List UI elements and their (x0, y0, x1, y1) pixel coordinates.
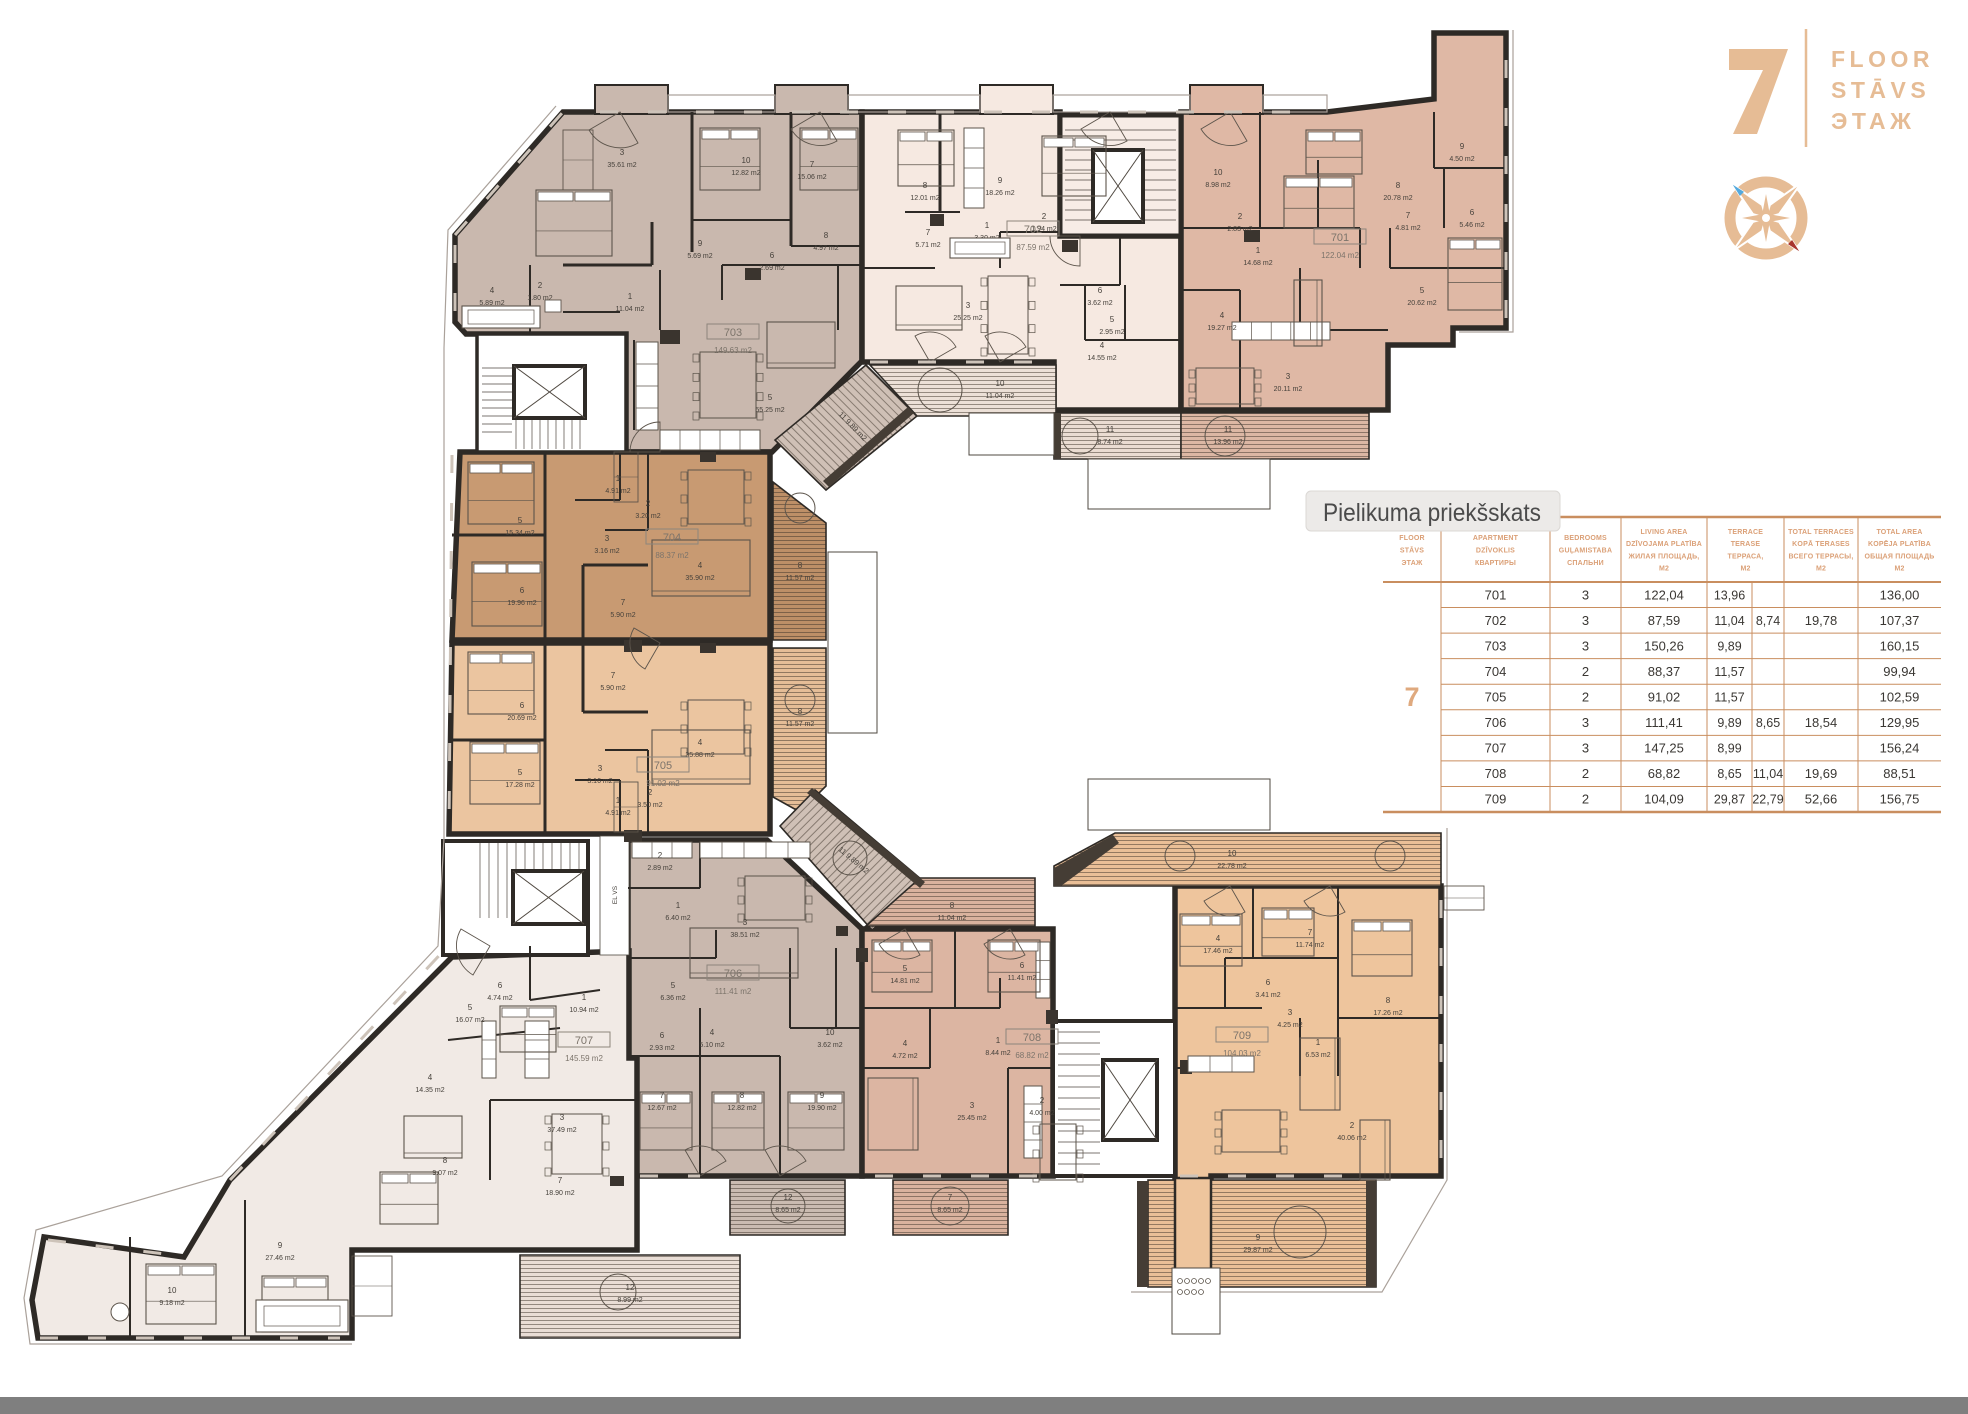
svg-text:40.06 m2: 40.06 m2 (1337, 1135, 1366, 1142)
svg-text:11.04 m2: 11.04 m2 (938, 915, 967, 922)
svg-text:136,00: 136,00 (1880, 587, 1920, 602)
svg-text:4.74 m2: 4.74 m2 (487, 995, 512, 1002)
svg-text:55.25 m2: 55.25 m2 (755, 407, 784, 414)
svg-text:5: 5 (768, 393, 773, 402)
svg-text:149.63 m2: 149.63 m2 (714, 346, 752, 355)
svg-text:701: 701 (1485, 587, 1507, 602)
svg-text:27.46 m2: 27.46 m2 (265, 1255, 294, 1262)
svg-text:5: 5 (1110, 315, 1115, 324)
svg-text:8,99: 8,99 (1717, 742, 1741, 756)
svg-text:52,66: 52,66 (1805, 792, 1838, 807)
svg-text:3: 3 (1582, 741, 1589, 756)
svg-text:7: 7 (926, 228, 931, 237)
svg-text:ТЕРРАСА,: ТЕРРАСА, (1727, 553, 1763, 560)
svg-text:88,37: 88,37 (1648, 664, 1681, 679)
svg-text:3: 3 (620, 148, 625, 157)
svg-text:3: 3 (605, 534, 610, 543)
svg-text:4: 4 (1220, 311, 1225, 320)
svg-text:88,51: 88,51 (1883, 766, 1916, 781)
svg-text:2.93 m2: 2.93 m2 (649, 1045, 674, 1052)
svg-text:2: 2 (1238, 212, 1243, 221)
svg-text:8.74 m2: 8.74 m2 (1097, 439, 1122, 446)
svg-text:5: 5 (671, 981, 676, 990)
svg-text:6: 6 (1266, 978, 1271, 987)
svg-text:2: 2 (648, 788, 653, 797)
svg-text:37.49 m2: 37.49 m2 (547, 1127, 576, 1134)
svg-text:5.46 m2: 5.46 m2 (1459, 222, 1484, 229)
svg-text:19.27 m2: 19.27 m2 (1207, 325, 1236, 332)
svg-text:1: 1 (1316, 1038, 1321, 1047)
svg-text:ЭТАЖ: ЭТАЖ (1831, 108, 1915, 134)
svg-text:147,25: 147,25 (1644, 741, 1684, 756)
svg-text:156,24: 156,24 (1880, 741, 1920, 756)
svg-text:4.50 m2: 4.50 m2 (1449, 156, 1474, 163)
svg-text:STĀVS: STĀVS (1400, 546, 1424, 554)
svg-text:145.59 m2: 145.59 m2 (565, 1054, 603, 1063)
svg-text:2: 2 (1582, 664, 1589, 679)
svg-text:25.45 m2: 25.45 m2 (957, 1115, 986, 1122)
svg-text:2.89 m2: 2.89 m2 (647, 865, 672, 872)
svg-text:10: 10 (1214, 168, 1223, 177)
svg-text:8: 8 (798, 561, 803, 570)
svg-text:2: 2 (1582, 690, 1589, 705)
svg-text:8.65 m2: 8.65 m2 (775, 1207, 800, 1214)
svg-text:1: 1 (582, 993, 587, 1002)
svg-text:FLOOR: FLOOR (1399, 535, 1425, 542)
svg-text:4.81 m2: 4.81 m2 (1395, 225, 1420, 232)
svg-text:12: 12 (784, 1193, 793, 1202)
svg-text:709: 709 (1233, 1030, 1251, 1042)
svg-text:14.35 m2: 14.35 m2 (415, 1087, 444, 1094)
svg-text:708: 708 (1023, 1032, 1041, 1044)
svg-text:19.96 m2: 19.96 m2 (507, 600, 536, 607)
svg-text:3.16 m2: 3.16 m2 (594, 548, 619, 555)
svg-text:3: 3 (1582, 613, 1589, 628)
svg-text:11.57 m2: 11.57 m2 (786, 721, 815, 728)
svg-text:4: 4 (490, 286, 495, 295)
svg-text:3.50 m2: 3.50 m2 (637, 802, 662, 809)
svg-text:160,15: 160,15 (1880, 638, 1920, 653)
svg-text:12.82 m2: 12.82 m2 (727, 1105, 756, 1112)
svg-text:11.57 m2: 11.57 m2 (786, 575, 815, 582)
svg-text:87.59 m2: 87.59 m2 (1016, 243, 1050, 252)
svg-text:8.65 m2: 8.65 m2 (937, 1207, 962, 1214)
svg-text:17.26 m2: 17.26 m2 (1373, 1010, 1402, 1017)
svg-text:22.78 m2: 22.78 m2 (1217, 863, 1246, 870)
svg-text:5: 5 (468, 1003, 473, 1012)
svg-text:707: 707 (1485, 741, 1507, 756)
svg-text:KOPĀ TERASES: KOPĀ TERASES (1792, 540, 1850, 548)
svg-text:6: 6 (1020, 961, 1025, 970)
svg-text:11.04 m2: 11.04 m2 (616, 306, 645, 313)
svg-text:8,65: 8,65 (1756, 716, 1780, 730)
svg-text:22,79: 22,79 (1752, 793, 1783, 807)
svg-text:5.90 m2: 5.90 m2 (610, 612, 635, 619)
svg-text:11.04 m2: 11.04 m2 (986, 393, 1015, 400)
svg-text:1: 1 (1256, 246, 1261, 255)
svg-text:3: 3 (743, 918, 748, 927)
svg-text:8.98 m2: 8.98 m2 (1205, 182, 1230, 189)
svg-text:7: 7 (611, 671, 616, 680)
svg-text:1: 1 (616, 474, 621, 483)
svg-text:GUĻAMISTABA: GUĻAMISTABA (1559, 547, 1612, 554)
svg-text:5.69 m2: 5.69 m2 (687, 253, 712, 260)
svg-text:KOPĒJA PLATĪBA: KOPĒJA PLATĪBA (1868, 540, 1931, 548)
svg-text:2: 2 (538, 281, 543, 290)
svg-text:3.62 m2: 3.62 m2 (1087, 300, 1112, 307)
svg-text:29,87: 29,87 (1714, 793, 1745, 807)
svg-text:5: 5 (903, 964, 908, 973)
svg-text:4: 4 (698, 738, 703, 747)
svg-text:STĀVS: STĀVS (1831, 77, 1930, 103)
svg-text:9: 9 (278, 1241, 283, 1250)
svg-text:9,89: 9,89 (1717, 716, 1741, 730)
svg-text:ЭТАЖ: ЭТАЖ (1402, 560, 1423, 567)
svg-text:TOTAL TERRACES: TOTAL TERRACES (1788, 529, 1854, 536)
svg-text:2: 2 (1350, 1121, 1355, 1130)
svg-text:1: 1 (985, 221, 990, 230)
svg-text:DZĪVOKLIS: DZĪVOKLIS (1476, 546, 1515, 554)
svg-text:12.82 m2: 12.82 m2 (731, 170, 760, 177)
svg-text:FLOOR: FLOOR (1831, 46, 1934, 72)
svg-text:5.10 m2: 5.10 m2 (699, 1042, 724, 1049)
svg-text:6.36 m2: 6.36 m2 (660, 995, 685, 1002)
svg-text:703: 703 (724, 327, 742, 339)
svg-text:6: 6 (498, 981, 503, 990)
svg-text:706: 706 (724, 968, 742, 980)
svg-text:6: 6 (770, 251, 775, 260)
svg-text:111.41 m2: 111.41 m2 (715, 987, 752, 996)
svg-text:6: 6 (1470, 208, 1475, 217)
svg-text:7: 7 (660, 1091, 665, 1100)
svg-text:104,09: 104,09 (1644, 792, 1684, 807)
svg-text:ОБЩАЯ ПЛОЩАДЬ: ОБЩАЯ ПЛОЩАДЬ (1864, 553, 1934, 560)
svg-text:122.04 m2: 122.04 m2 (1321, 251, 1359, 260)
svg-text:107,37: 107,37 (1880, 613, 1920, 628)
svg-text:M2: M2 (1894, 566, 1904, 573)
svg-text:35.88 m2: 35.88 m2 (685, 752, 714, 759)
svg-text:104.03 m2: 104.03 m2 (1223, 1049, 1261, 1058)
svg-text:706: 706 (1485, 715, 1507, 730)
svg-text:10: 10 (742, 156, 751, 165)
svg-text:EL VS: EL VS (612, 885, 619, 904)
svg-text:99,94: 99,94 (1883, 664, 1916, 679)
svg-text:3.20 m2: 3.20 m2 (635, 513, 660, 520)
svg-text:8,74: 8,74 (1756, 614, 1780, 628)
svg-text:4: 4 (1216, 934, 1221, 943)
svg-text:4.97 m2: 4.97 m2 (813, 245, 838, 252)
svg-text:11.74 m2: 11.74 m2 (1296, 942, 1325, 949)
svg-text:11.41 m2: 11.41 m2 (1008, 975, 1037, 982)
svg-text:68,82: 68,82 (1648, 766, 1681, 781)
svg-text:16.07 m2: 16.07 m2 (455, 1017, 484, 1024)
svg-text:1: 1 (628, 292, 633, 301)
svg-text:8: 8 (1396, 181, 1401, 190)
svg-text:2.95 m2: 2.95 m2 (1099, 329, 1124, 336)
svg-text:7: 7 (1404, 682, 1419, 712)
svg-text:9: 9 (1460, 142, 1465, 151)
svg-text:15.06 m2: 15.06 m2 (797, 174, 826, 181)
svg-text:6.40 m2: 6.40 m2 (665, 915, 690, 922)
svg-text:4: 4 (428, 1073, 433, 1082)
svg-text:10: 10 (826, 1028, 835, 1037)
svg-text:3: 3 (966, 301, 971, 310)
svg-text:702: 702 (1024, 224, 1042, 236)
svg-text:11: 11 (1224, 425, 1233, 434)
svg-text:4.91 m2: 4.91 m2 (605, 810, 630, 817)
svg-text:6: 6 (660, 1031, 665, 1040)
svg-text:4: 4 (1100, 341, 1105, 350)
svg-text:91,02: 91,02 (1648, 690, 1681, 705)
svg-text:10: 10 (996, 379, 1005, 388)
svg-text:4: 4 (698, 561, 703, 570)
svg-text:6.53 m2: 6.53 m2 (1305, 1052, 1330, 1059)
svg-text:111,41: 111,41 (1645, 715, 1683, 730)
svg-text:122,04: 122,04 (1644, 587, 1684, 602)
svg-text:703: 703 (1485, 638, 1507, 653)
svg-text:18,54: 18,54 (1805, 715, 1838, 730)
svg-text:9: 9 (1256, 1233, 1261, 1242)
svg-text:9.18 m2: 9.18 m2 (159, 1300, 184, 1307)
svg-text:9: 9 (998, 176, 1003, 185)
svg-text:19,69: 19,69 (1805, 766, 1838, 781)
svg-text:35.61 m2: 35.61 m2 (607, 162, 636, 169)
svg-text:3: 3 (1582, 587, 1589, 602)
svg-text:6: 6 (520, 586, 525, 595)
svg-text:17.46 m2: 17.46 m2 (1203, 948, 1232, 955)
svg-text:LIVING AREA: LIVING AREA (1640, 529, 1687, 536)
svg-text:5.90 m2: 5.90 m2 (600, 685, 625, 692)
svg-text:3: 3 (598, 764, 603, 773)
svg-text:M2: M2 (1740, 566, 1750, 573)
svg-text:20.62 m2: 20.62 m2 (1407, 300, 1436, 307)
svg-text:19,78: 19,78 (1805, 613, 1838, 628)
svg-text:25.25 m2: 25.25 m2 (953, 315, 982, 322)
svg-text:4: 4 (710, 1028, 715, 1037)
svg-text:4.91 m2: 4.91 m2 (605, 488, 630, 495)
svg-text:91.02 m2: 91.02 m2 (646, 779, 680, 788)
svg-text:КВАРТИРЫ: КВАРТИРЫ (1475, 560, 1516, 567)
svg-text:708: 708 (1485, 766, 1507, 781)
svg-text:M2: M2 (1816, 566, 1826, 573)
svg-text:8: 8 (824, 231, 829, 240)
svg-text:14.68 m2: 14.68 m2 (1243, 260, 1272, 267)
svg-text:705: 705 (1485, 690, 1507, 705)
svg-text:ЖИЛАЯ ПЛОЩАДЬ,: ЖИЛАЯ ПЛОЩАДЬ, (1628, 553, 1700, 560)
svg-text:7: 7 (621, 598, 626, 607)
svg-text:3: 3 (1582, 715, 1589, 730)
svg-text:8: 8 (950, 901, 955, 910)
svg-text:702: 702 (1485, 613, 1507, 628)
svg-text:15.34 m2: 15.34 m2 (505, 530, 534, 537)
svg-text:3.62 m2: 3.62 m2 (817, 1042, 842, 1049)
svg-text:10: 10 (168, 1286, 177, 1295)
svg-text:87,59: 87,59 (1648, 613, 1681, 628)
svg-text:156,75: 156,75 (1880, 792, 1920, 807)
svg-text:8: 8 (1386, 996, 1391, 1005)
svg-text:68.82 m2: 68.82 m2 (1015, 1051, 1049, 1060)
svg-text:4.72 m2: 4.72 m2 (892, 1053, 917, 1060)
svg-text:707: 707 (575, 1035, 593, 1047)
svg-text:9: 9 (820, 1091, 825, 1100)
svg-text:BEDROOMS: BEDROOMS (1564, 535, 1607, 542)
svg-text:11: 11 (1106, 425, 1115, 434)
svg-text:8: 8 (443, 1156, 448, 1165)
svg-text:7: 7 (1406, 211, 1411, 220)
svg-text:10: 10 (1228, 849, 1237, 858)
svg-text:11,57: 11,57 (1714, 665, 1744, 679)
svg-text:8: 8 (798, 707, 803, 716)
svg-text:10.94 m2: 10.94 m2 (569, 1007, 598, 1014)
svg-text:2: 2 (1582, 792, 1589, 807)
svg-text:88.37 m2: 88.37 m2 (655, 551, 689, 560)
svg-text:11,04: 11,04 (1714, 614, 1744, 628)
svg-text:12.67 m2: 12.67 m2 (647, 1105, 676, 1112)
svg-text:705: 705 (654, 760, 672, 772)
svg-text:5.71 m2: 5.71 m2 (915, 242, 940, 249)
svg-text:11,04: 11,04 (1753, 767, 1783, 781)
svg-text:8.44 m2: 8.44 m2 (985, 1050, 1010, 1057)
svg-text:150,26: 150,26 (1644, 638, 1684, 653)
svg-text:3: 3 (560, 1113, 565, 1122)
svg-text:8: 8 (740, 1091, 745, 1100)
svg-text:4.25 m2: 4.25 m2 (1277, 1022, 1302, 1029)
svg-text:5: 5 (1420, 286, 1425, 295)
svg-text:2: 2 (658, 851, 663, 860)
svg-text:APARTMENT: APARTMENT (1473, 535, 1519, 542)
svg-text:20.69 m2: 20.69 m2 (507, 715, 536, 722)
svg-text:2: 2 (1040, 1096, 1045, 1105)
svg-text:8,65: 8,65 (1717, 767, 1741, 781)
svg-text:8: 8 (923, 181, 928, 190)
svg-text:2: 2 (646, 499, 651, 508)
svg-text:12: 12 (626, 1283, 635, 1292)
svg-text:3.16 m2: 3.16 m2 (587, 778, 612, 785)
svg-text:704: 704 (663, 532, 681, 544)
svg-text:5: 5 (518, 768, 523, 777)
svg-text:TERRACE: TERRACE (1728, 529, 1763, 536)
svg-text:13.96 m2: 13.96 m2 (1213, 439, 1242, 446)
svg-text:129,95: 129,95 (1880, 715, 1920, 730)
svg-text:9: 9 (698, 239, 703, 248)
svg-text:5: 5 (518, 516, 523, 525)
svg-text:1: 1 (996, 1036, 1001, 1045)
svg-text:TERASE: TERASE (1731, 541, 1761, 548)
svg-text:704: 704 (1485, 664, 1507, 679)
svg-text:1: 1 (616, 796, 621, 805)
svg-text:7: 7 (810, 160, 815, 169)
svg-text:35.90 m2: 35.90 m2 (685, 575, 714, 582)
svg-text:18.90 m2: 18.90 m2 (545, 1190, 574, 1197)
svg-text:7: 7 (948, 1193, 953, 1202)
svg-text:102,59: 102,59 (1880, 690, 1920, 705)
svg-text:18.26 m2: 18.26 m2 (985, 190, 1014, 197)
svg-text:19.90 m2: 19.90 m2 (807, 1105, 836, 1112)
svg-text:9.07 m2: 9.07 m2 (432, 1170, 457, 1177)
svg-text:M2: M2 (1659, 566, 1669, 573)
svg-text:2.83 m2: 2.83 m2 (1227, 226, 1252, 233)
svg-text:3: 3 (1288, 1008, 1293, 1017)
svg-text:4.00 m2: 4.00 m2 (1029, 1110, 1054, 1117)
svg-text:3: 3 (1286, 372, 1291, 381)
svg-text:СПАЛЬНИ: СПАЛЬНИ (1567, 560, 1604, 567)
svg-text:7: 7 (558, 1176, 563, 1185)
svg-text:9,89: 9,89 (1717, 639, 1741, 653)
svg-text:14.81 m2: 14.81 m2 (890, 978, 919, 985)
svg-text:3: 3 (1582, 638, 1589, 653)
svg-text:17.28 m2: 17.28 m2 (505, 782, 534, 789)
svg-text:38.51 m2: 38.51 m2 (730, 932, 759, 939)
svg-text:ВСЕГО ТЕРРАСЫ,: ВСЕГО ТЕРРАСЫ, (1789, 553, 1854, 560)
svg-text:6: 6 (520, 701, 525, 710)
svg-text:6: 6 (1098, 286, 1103, 295)
svg-text:Pielikuma priekšskats: Pielikuma priekšskats (1323, 499, 1541, 527)
svg-text:20.11 m2: 20.11 m2 (1274, 386, 1303, 393)
svg-text:709: 709 (1485, 792, 1507, 807)
svg-text:3.41 m2: 3.41 m2 (1255, 992, 1280, 999)
svg-text:2: 2 (1042, 212, 1047, 221)
svg-text:1: 1 (676, 901, 681, 910)
svg-text:TOTAL AREA: TOTAL AREA (1876, 529, 1922, 536)
svg-text:DZĪVOJAMA PLATĪBA: DZĪVOJAMA PLATĪBA (1626, 540, 1702, 548)
svg-text:20.78 m2: 20.78 m2 (1383, 195, 1412, 202)
svg-text:14.55 m2: 14.55 m2 (1087, 355, 1116, 362)
svg-text:2: 2 (1582, 766, 1589, 781)
svg-text:12.01 m2: 12.01 m2 (910, 195, 939, 202)
svg-text:2.69 m2: 2.69 m2 (759, 265, 784, 272)
svg-text:4: 4 (903, 1039, 908, 1048)
svg-text:701: 701 (1331, 232, 1349, 244)
svg-text:29.87 m2: 29.87 m2 (1243, 1247, 1272, 1254)
svg-text:3: 3 (970, 1101, 975, 1110)
svg-text:11,57: 11,57 (1714, 691, 1744, 705)
svg-text:13,96: 13,96 (1714, 588, 1745, 602)
svg-text:8.99 m2: 8.99 m2 (617, 1297, 642, 1304)
svg-text:7: 7 (1308, 928, 1313, 937)
